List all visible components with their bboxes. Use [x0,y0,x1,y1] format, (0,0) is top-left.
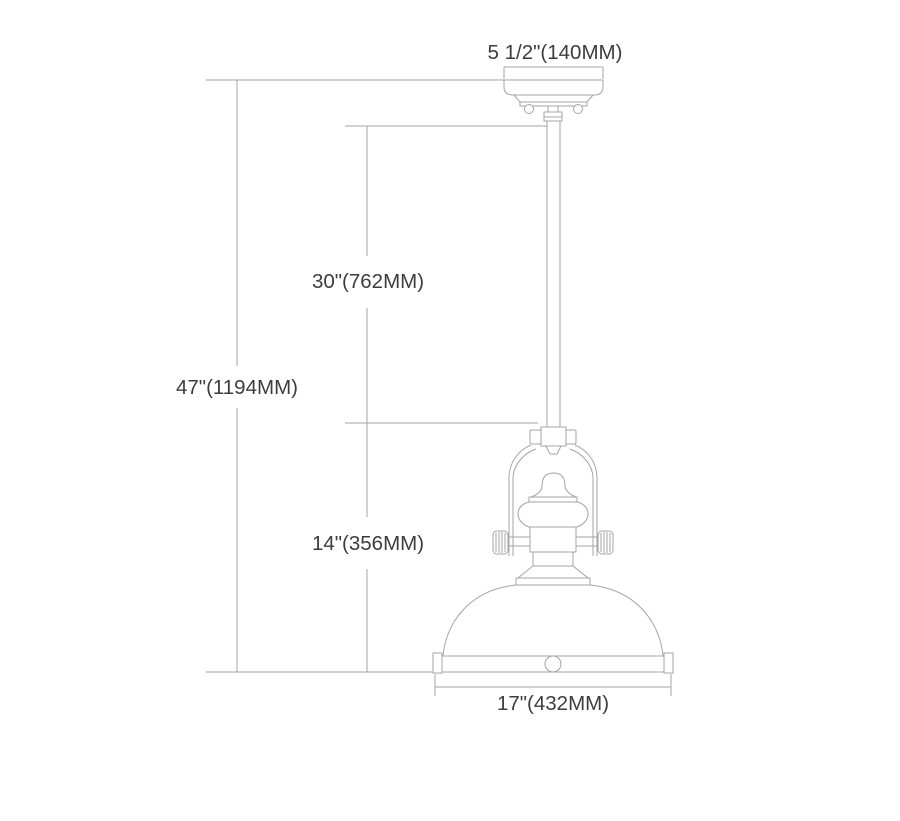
thumbscrew-left [493,531,508,554]
shade [433,585,673,673]
canopy-screw-right [574,105,583,114]
shade-dome-left-curve [443,585,516,656]
rod-length-label: 30"(762MM) [312,270,424,293]
shade-band-cap-left [433,653,442,673]
dimension-fixture-height: 14"(356MM) [312,423,424,672]
finial-collar [529,497,577,502]
rod-body [547,121,560,427]
dimension-diagram: 5 1/2"(140MM) 47"(1194MM) 30"(762MM) 14"… [0,0,900,821]
canopy-step [514,95,593,102]
dimension-shade-diameter: 17"(432MM) [435,674,671,715]
thumbscrew-left-body [493,531,508,554]
dimension-overall-height: 47"(1194MM) [176,80,504,672]
vase-bulge [518,502,588,527]
dimension-canopy-width: 5 1/2"(140MM) [488,41,623,79]
shade-band-knob [545,656,561,672]
pivot-block [541,427,566,446]
yoke-right-outer [575,445,597,556]
fixture-height-label: 14"(356MM) [312,532,424,555]
socket-skirt [518,566,588,578]
socket-assembly [516,473,590,585]
dimension-rod-length: 30"(762MM) [312,126,547,423]
socket-plate [516,578,590,585]
yoke-left-outer [509,445,531,556]
pivot-assembly [530,427,576,454]
canopy [504,80,603,114]
pivot-nut-right [565,430,576,444]
canopy-curve [504,87,603,95]
pendant-diagram-svg: 5 1/2"(140MM) 47"(1194MM) 30"(762MM) 14"… [0,0,900,821]
socket-cylinder [530,527,576,552]
down-rod [544,106,562,427]
socket-inset [533,552,573,566]
pivot-cone [546,446,561,454]
shade-band-cap-right [664,653,673,673]
finial-cap [531,473,576,497]
overall-height-label: 47"(1194MM) [176,376,298,399]
canopy-screw-left [525,105,534,114]
shade-diameter-label: 17"(432MM) [497,692,609,715]
canopy-width-label: 5 1/2"(140MM) [488,41,623,64]
shade-dome-right-curve [590,585,663,656]
thumbscrew-right-body [598,531,613,554]
pivot-nut-left [530,430,541,444]
thumbscrew-right [598,531,613,554]
